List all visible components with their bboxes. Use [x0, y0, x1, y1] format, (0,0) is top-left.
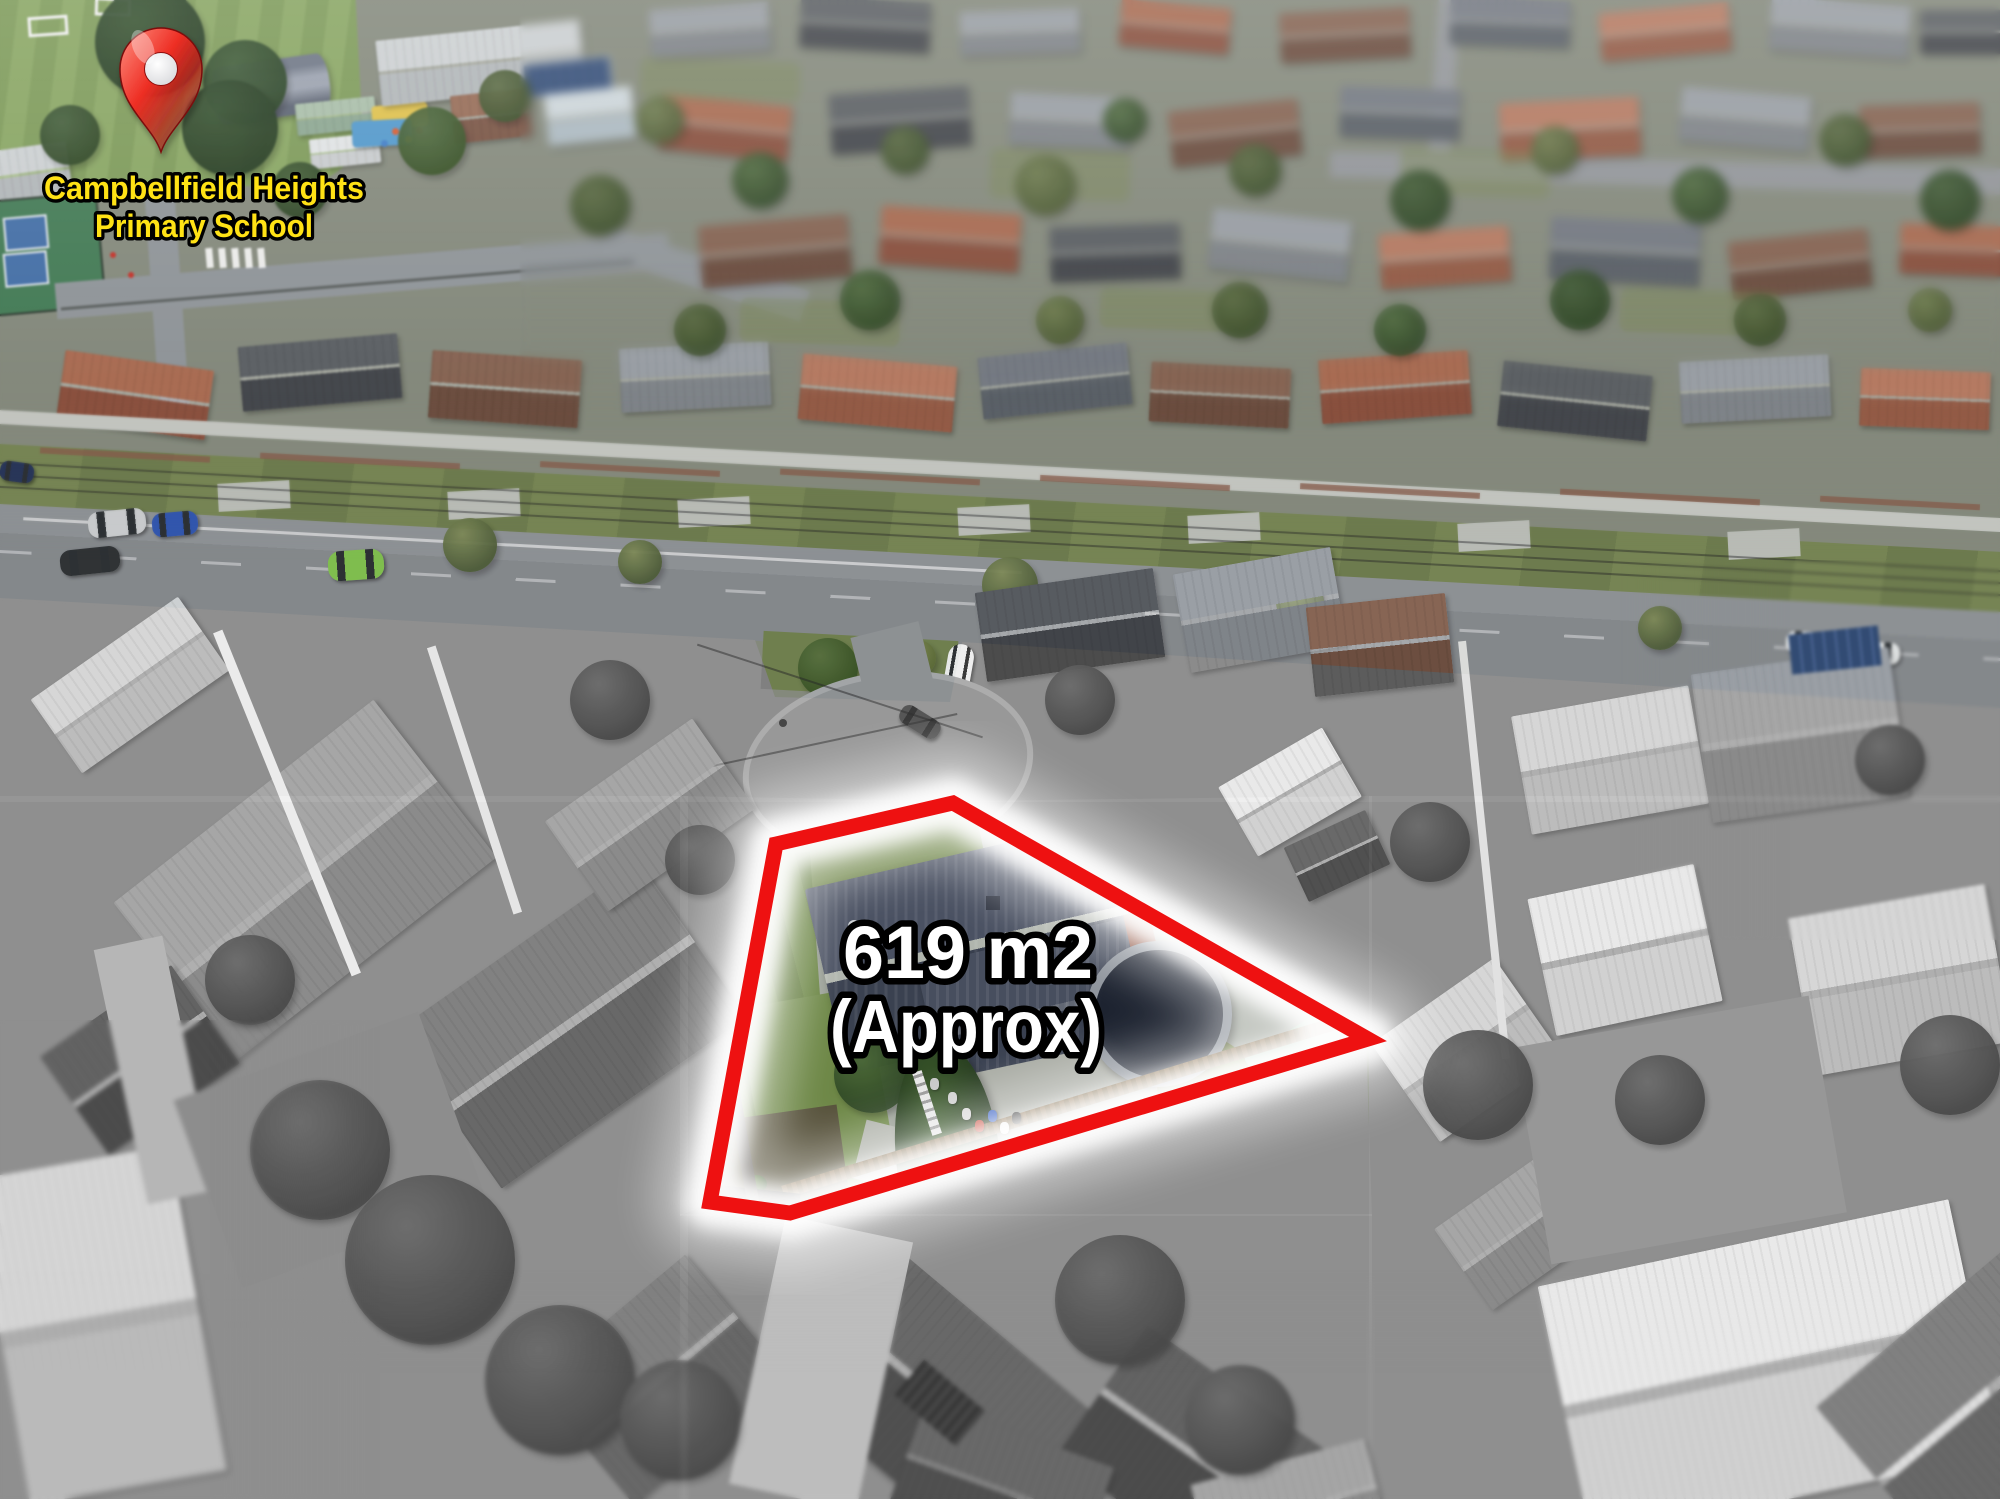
- map-pin-icon: [120, 26, 202, 152]
- annotation-overlay: 619 m2 (Approx) Campbellfield Heights Pr…: [0, 0, 2000, 1499]
- aerial-photo: 619 m2 (Approx) Campbellfield Heights Pr…: [0, 0, 2000, 1499]
- area-label-line1: 619 m2: [843, 911, 1093, 994]
- area-label-line2: (Approx): [830, 985, 1102, 1068]
- school-label-line2: Primary School: [95, 208, 313, 244]
- school-label-line1: Campbellfield Heights: [44, 170, 364, 206]
